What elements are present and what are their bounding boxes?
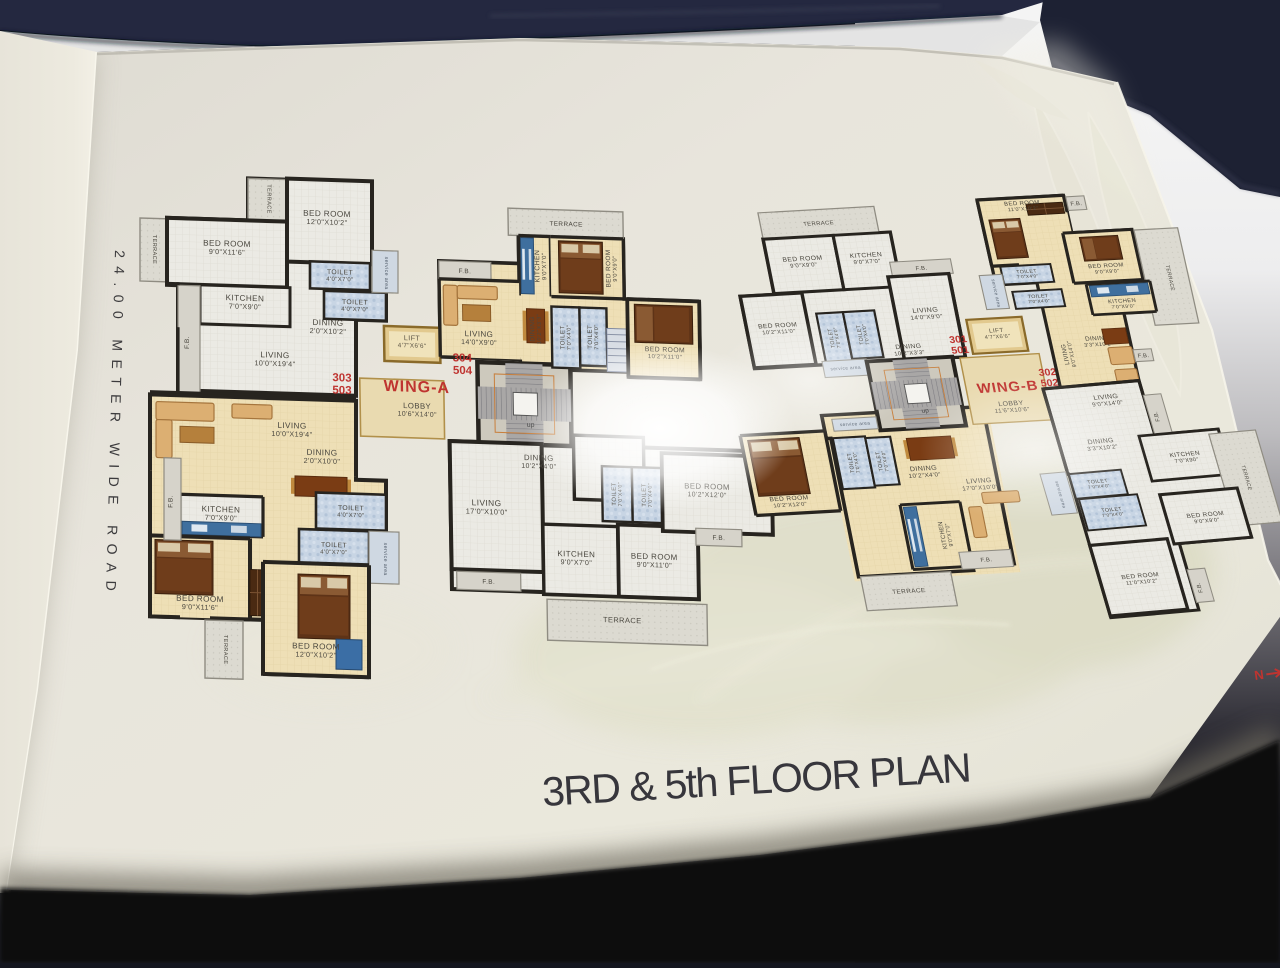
svg-text:TERRACE: TERRACE bbox=[549, 221, 582, 229]
svg-text:TERRACE: TERRACE bbox=[603, 615, 642, 625]
svg-text:17'0"X10'0": 17'0"X10'0" bbox=[466, 506, 508, 516]
svg-text:F.B.: F.B. bbox=[482, 579, 495, 586]
svg-text:F.B.: F.B. bbox=[712, 535, 725, 542]
svg-text:10'0"X19'4": 10'0"X19'4" bbox=[254, 358, 295, 368]
svg-text:service area: service area bbox=[383, 257, 389, 290]
svg-text:KITCHEN: KITCHEN bbox=[557, 549, 595, 559]
svg-text:10'0"X19'4": 10'0"X19'4" bbox=[271, 429, 312, 439]
svg-text:7'0"X4'0": 7'0"X4'0" bbox=[566, 325, 572, 350]
svg-text:7'0"X4'0": 7'0"X4'0" bbox=[594, 324, 600, 349]
svg-text:9'0"X11'0": 9'0"X11'0" bbox=[637, 562, 673, 570]
svg-text:4'0"X7'0": 4'0"X7'0" bbox=[320, 549, 347, 556]
svg-text:10'6"X14'0": 10'6"X14'0" bbox=[398, 411, 438, 419]
svg-text:9'0"X11'6": 9'0"X11'6" bbox=[182, 602, 218, 612]
svg-text:TERRACE: TERRACE bbox=[266, 184, 272, 214]
svg-text:12'0"X10'2": 12'0"X10'2" bbox=[295, 650, 336, 660]
svg-text:F.B.: F.B. bbox=[459, 268, 472, 275]
svg-text:2'0"X10'2": 2'0"X10'2" bbox=[310, 326, 347, 336]
svg-text:303: 303 bbox=[332, 372, 351, 385]
svg-text:2'0"X10'0": 2'0"X10'0" bbox=[304, 456, 341, 466]
svg-text:F.B.: F.B. bbox=[168, 495, 175, 508]
svg-text:12'0"X10'2": 12'0"X10'2" bbox=[306, 217, 347, 227]
svg-text:TOILET: TOILET bbox=[327, 269, 353, 277]
svg-text:503: 503 bbox=[332, 385, 351, 398]
svg-text:F.B.: F.B. bbox=[980, 557, 993, 563]
svg-text:4'0"X7'0": 4'0"X7'0" bbox=[326, 277, 353, 284]
svg-text:14'0"X9'0": 14'0"X9'0" bbox=[461, 339, 497, 347]
svg-text:7'0"X9'0": 7'0"X9'0" bbox=[229, 301, 261, 311]
svg-text:TOILET: TOILET bbox=[321, 542, 347, 550]
svg-text:DINING: DINING bbox=[529, 316, 536, 342]
svg-text:KITCHEN: KITCHEN bbox=[534, 250, 542, 283]
svg-text:service area: service area bbox=[382, 543, 388, 576]
svg-text:TOILET: TOILET bbox=[342, 299, 368, 307]
svg-text:F.B.: F.B. bbox=[915, 266, 928, 272]
svg-text:F.B.: F.B. bbox=[184, 336, 191, 349]
svg-text:10'2"X3'3": 10'2"X3'3" bbox=[537, 314, 543, 345]
svg-text:7'0"X9'0": 7'0"X9'0" bbox=[205, 513, 237, 523]
svg-text:301: 301 bbox=[948, 334, 968, 345]
svg-text:TERRACE: TERRACE bbox=[222, 635, 228, 665]
svg-text:LIVING: LIVING bbox=[465, 329, 494, 339]
svg-text:9'0"X9'0": 9'0"X9'0" bbox=[612, 256, 618, 282]
svg-text:9'0"X7'0": 9'0"X7'0" bbox=[542, 253, 548, 281]
svg-text:F.B.: F.B. bbox=[1070, 201, 1083, 207]
svg-text:LIFT: LIFT bbox=[404, 333, 421, 343]
svg-text:F.B.: F.B. bbox=[1137, 353, 1150, 359]
svg-text:TOILET: TOILET bbox=[338, 505, 364, 513]
svg-text:LOBBY: LOBBY bbox=[403, 401, 432, 411]
svg-text:304: 304 bbox=[453, 352, 473, 365]
svg-text:BED ROOM: BED ROOM bbox=[631, 552, 678, 563]
svg-text:4'7"X6'6": 4'7"X6'6" bbox=[398, 342, 427, 350]
svg-text:WING-A: WING-A bbox=[383, 378, 450, 397]
svg-text:4'0"X7'0": 4'0"X7'0" bbox=[341, 307, 368, 314]
svg-text:9'0"X11'6": 9'0"X11'6" bbox=[209, 247, 245, 257]
svg-text:TERRACE: TERRACE bbox=[151, 235, 157, 265]
svg-text:BED ROOM: BED ROOM bbox=[605, 249, 613, 287]
svg-text:9'0"X7'0": 9'0"X7'0" bbox=[561, 559, 593, 567]
svg-text:504: 504 bbox=[453, 365, 473, 378]
svg-text:4'0"X7'0": 4'0"X7'0" bbox=[337, 512, 364, 519]
